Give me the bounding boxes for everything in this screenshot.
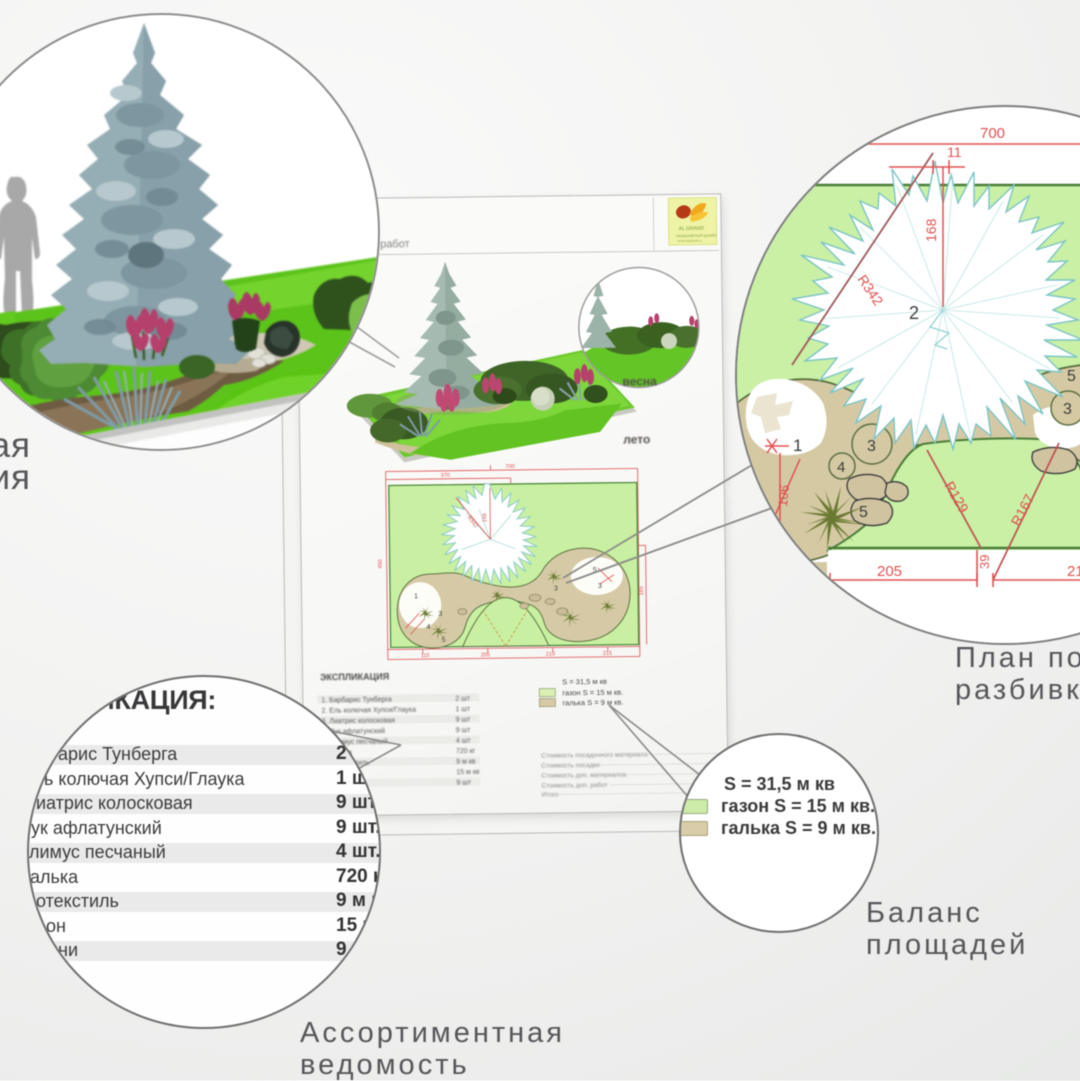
svg-text:3: 3	[867, 438, 876, 455]
svg-text:2: 2	[909, 303, 919, 323]
svg-text:106: 106	[775, 484, 792, 507]
svg-text:5: 5	[1067, 368, 1076, 385]
svg-text:168: 168	[923, 218, 939, 242]
svg-text:4: 4	[837, 459, 845, 476]
svg-text:205: 205	[877, 563, 902, 580]
svg-text:700: 700	[980, 125, 1005, 142]
svg-text:1: 1	[793, 436, 802, 455]
svg-text:39: 39	[977, 555, 992, 569]
svg-text:5: 5	[859, 504, 868, 521]
svg-text:21: 21	[1067, 563, 1080, 580]
svg-text:11: 11	[947, 144, 962, 160]
svg-text:3: 3	[1063, 401, 1072, 418]
